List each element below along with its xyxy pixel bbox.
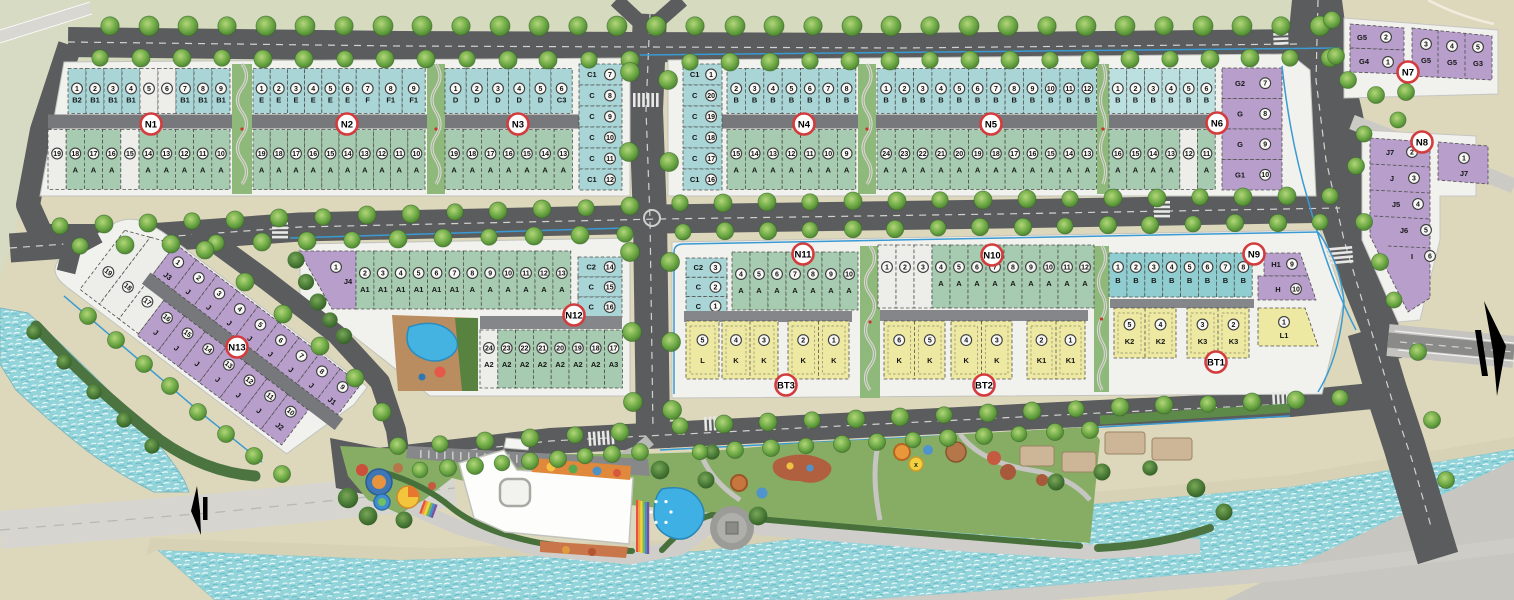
svg-text:A: A <box>91 166 97 175</box>
svg-text:G3: G3 <box>1473 59 1483 68</box>
svg-text:5: 5 <box>1188 264 1192 271</box>
svg-text:16: 16 <box>505 151 513 158</box>
svg-text:6: 6 <box>1206 264 1210 271</box>
svg-text:C: C <box>696 283 702 292</box>
svg-text:A: A <box>559 285 565 294</box>
svg-text:2: 2 <box>1410 149 1414 156</box>
svg-text:6: 6 <box>897 338 901 345</box>
svg-text:A: A <box>738 286 744 295</box>
svg-text:17: 17 <box>487 151 495 158</box>
svg-text:A: A <box>844 166 850 175</box>
svg-text:A: A <box>1085 166 1091 175</box>
svg-text:15: 15 <box>606 284 614 291</box>
svg-text:5: 5 <box>1424 227 1428 234</box>
svg-text:14: 14 <box>1065 151 1073 158</box>
svg-text:A: A <box>846 286 852 295</box>
svg-text:x: x <box>914 462 918 469</box>
svg-text:N7: N7 <box>1402 67 1414 78</box>
svg-text:A: A <box>345 166 351 175</box>
svg-text:10: 10 <box>217 151 225 158</box>
svg-text:A: A <box>73 166 79 175</box>
svg-text:15: 15 <box>1132 151 1140 158</box>
svg-text:16: 16 <box>606 304 614 311</box>
svg-text:17: 17 <box>610 345 618 352</box>
svg-text:G2: G2 <box>1235 79 1245 88</box>
svg-text:9: 9 <box>845 151 849 158</box>
svg-text:B: B <box>920 96 926 105</box>
svg-text:5: 5 <box>328 86 332 93</box>
svg-text:B1: B1 <box>180 96 190 105</box>
svg-text:A2: A2 <box>555 360 565 369</box>
svg-text:B: B <box>770 96 776 105</box>
svg-text:F1: F1 <box>409 96 418 105</box>
svg-text:J5: J5 <box>1392 200 1400 209</box>
svg-text:B: B <box>1223 276 1229 285</box>
svg-text:11: 11 <box>395 151 403 158</box>
svg-text:24: 24 <box>882 151 890 158</box>
svg-text:A: A <box>109 166 115 175</box>
svg-text:8: 8 <box>811 271 815 278</box>
svg-text:18: 18 <box>707 135 715 142</box>
svg-text:15: 15 <box>1047 151 1055 158</box>
svg-text:A: A <box>470 285 476 294</box>
svg-text:4: 4 <box>1450 43 1454 50</box>
svg-text:B: B <box>733 96 739 105</box>
svg-text:N8: N8 <box>1416 137 1428 148</box>
svg-text:A: A <box>164 166 170 175</box>
svg-text:17: 17 <box>1010 151 1018 158</box>
svg-text:A: A <box>756 286 762 295</box>
svg-text:13: 13 <box>769 151 777 158</box>
svg-text:3: 3 <box>1201 322 1205 329</box>
svg-text:A: A <box>938 166 944 175</box>
svg-text:2: 2 <box>734 86 738 93</box>
svg-text:16: 16 <box>1029 151 1037 158</box>
svg-text:2: 2 <box>1384 34 1388 41</box>
svg-text:4: 4 <box>939 86 943 93</box>
svg-text:A: A <box>828 286 834 295</box>
svg-text:A2: A2 <box>484 360 494 369</box>
svg-text:K: K <box>800 356 806 365</box>
svg-text:A: A <box>810 286 816 295</box>
svg-text:3: 3 <box>294 86 298 93</box>
svg-text:14: 14 <box>1149 151 1157 158</box>
svg-text:2: 2 <box>902 86 906 93</box>
svg-text:A: A <box>1046 279 1052 288</box>
svg-text:13: 13 <box>559 151 567 158</box>
svg-text:D: D <box>474 96 480 105</box>
svg-text:J: J <box>1390 174 1394 183</box>
svg-text:A2: A2 <box>538 360 548 369</box>
svg-text:B: B <box>1187 276 1193 285</box>
svg-text:A: A <box>883 166 889 175</box>
svg-text:14: 14 <box>751 151 759 158</box>
svg-text:C: C <box>692 154 698 163</box>
svg-text:A: A <box>451 166 457 175</box>
svg-text:A: A <box>524 166 530 175</box>
svg-text:C1: C1 <box>587 175 597 184</box>
svg-text:12: 12 <box>1185 151 1193 158</box>
svg-text:13: 13 <box>1167 151 1175 158</box>
svg-text:A: A <box>789 166 795 175</box>
svg-text:B: B <box>1085 96 1091 105</box>
svg-text:7: 7 <box>994 86 998 93</box>
svg-text:B: B <box>1048 96 1054 105</box>
svg-text:18: 18 <box>71 151 79 158</box>
svg-text:A1: A1 <box>360 285 370 294</box>
svg-text:A: A <box>1064 279 1070 288</box>
svg-text:2: 2 <box>1134 86 1138 93</box>
svg-text:18: 18 <box>275 151 283 158</box>
svg-text:3: 3 <box>921 264 925 271</box>
svg-text:A: A <box>825 166 831 175</box>
svg-text:1: 1 <box>1069 338 1073 345</box>
svg-text:B: B <box>1115 96 1121 105</box>
svg-text:K: K <box>896 356 902 365</box>
svg-text:E: E <box>276 96 281 105</box>
svg-text:C: C <box>588 303 594 312</box>
svg-text:A1: A1 <box>378 285 388 294</box>
svg-text:A: A <box>1204 166 1210 175</box>
svg-text:H1: H1 <box>1271 260 1281 269</box>
svg-text:A: A <box>1028 279 1034 288</box>
svg-text:12: 12 <box>788 151 796 158</box>
svg-text:2: 2 <box>1232 322 1236 329</box>
svg-text:10: 10 <box>1045 264 1053 271</box>
svg-text:A: A <box>902 166 908 175</box>
svg-text:19: 19 <box>258 151 266 158</box>
svg-text:13: 13 <box>1084 151 1092 158</box>
svg-text:22: 22 <box>521 345 529 352</box>
svg-text:19: 19 <box>974 151 982 158</box>
svg-text:A: A <box>276 166 282 175</box>
svg-text:1: 1 <box>1386 59 1390 66</box>
svg-text:14: 14 <box>541 151 549 158</box>
svg-text:13: 13 <box>558 270 566 277</box>
svg-text:K1: K1 <box>1037 356 1047 365</box>
svg-text:C1: C1 <box>587 70 597 79</box>
svg-text:A: A <box>182 166 188 175</box>
svg-text:15: 15 <box>327 151 335 158</box>
svg-text:C2: C2 <box>586 263 596 272</box>
svg-text:9: 9 <box>1031 86 1035 93</box>
svg-text:J7: J7 <box>1386 148 1394 157</box>
svg-text:A: A <box>488 166 494 175</box>
svg-text:14: 14 <box>144 151 152 158</box>
svg-text:B: B <box>993 96 999 105</box>
svg-text:B: B <box>1030 96 1036 105</box>
svg-text:10: 10 <box>845 271 853 278</box>
svg-text:2: 2 <box>714 284 718 291</box>
svg-text:A1: A1 <box>432 285 442 294</box>
svg-text:7: 7 <box>452 270 456 277</box>
svg-text:6: 6 <box>1428 253 1432 260</box>
svg-text:F: F <box>365 96 370 105</box>
svg-text:4: 4 <box>964 338 968 345</box>
svg-text:14: 14 <box>344 151 352 158</box>
svg-text:B: B <box>883 96 889 105</box>
svg-text:20: 20 <box>955 151 963 158</box>
svg-text:A: A <box>310 166 316 175</box>
svg-text:19: 19 <box>707 114 715 121</box>
svg-text:1: 1 <box>884 86 888 93</box>
svg-text:G1: G1 <box>1235 170 1245 179</box>
svg-text:1: 1 <box>885 264 889 271</box>
svg-text:B: B <box>844 96 850 105</box>
svg-text:A2: A2 <box>520 360 530 369</box>
svg-text:1: 1 <box>714 304 718 311</box>
svg-text:11: 11 <box>1203 151 1211 158</box>
svg-text:20: 20 <box>707 93 715 100</box>
svg-text:4: 4 <box>939 264 943 271</box>
svg-text:5: 5 <box>957 86 961 93</box>
svg-text:A: A <box>975 166 981 175</box>
svg-text:4: 4 <box>1170 264 1174 271</box>
svg-text:D: D <box>538 96 544 105</box>
svg-text:2: 2 <box>475 86 479 93</box>
svg-text:17: 17 <box>292 151 300 158</box>
svg-text:B: B <box>1115 276 1121 285</box>
svg-text:19: 19 <box>450 151 458 158</box>
svg-text:4: 4 <box>399 270 403 277</box>
svg-text:A: A <box>293 166 299 175</box>
svg-text:A: A <box>938 279 944 288</box>
svg-text:A: A <box>396 166 402 175</box>
svg-text:22: 22 <box>919 151 927 158</box>
svg-text:3: 3 <box>995 338 999 345</box>
svg-text:5: 5 <box>147 86 151 93</box>
svg-text:B: B <box>1011 96 1017 105</box>
svg-text:C: C <box>588 283 594 292</box>
svg-text:A: A <box>328 166 334 175</box>
svg-text:12: 12 <box>1084 86 1092 93</box>
svg-text:B: B <box>938 96 944 105</box>
svg-text:A: A <box>1010 279 1016 288</box>
svg-text:2: 2 <box>801 338 805 345</box>
svg-text:B: B <box>1150 96 1156 105</box>
svg-text:6: 6 <box>560 86 564 93</box>
svg-text:9: 9 <box>829 271 833 278</box>
svg-text:J4: J4 <box>344 277 353 286</box>
svg-text:G: G <box>1237 109 1243 118</box>
svg-text:B: B <box>1168 96 1174 105</box>
svg-text:A: A <box>487 285 493 294</box>
svg-text:1: 1 <box>1462 155 1466 162</box>
svg-text:7: 7 <box>826 86 830 93</box>
svg-text:8: 8 <box>1012 86 1016 93</box>
svg-text:13: 13 <box>361 151 369 158</box>
svg-text:10: 10 <box>1047 86 1055 93</box>
svg-text:9: 9 <box>219 86 223 93</box>
svg-text:K: K <box>994 356 1000 365</box>
svg-text:11: 11 <box>522 270 530 277</box>
svg-text:B1: B1 <box>126 96 136 105</box>
svg-text:21: 21 <box>937 151 945 158</box>
svg-text:K: K <box>927 356 933 365</box>
svg-text:D: D <box>495 96 501 105</box>
svg-text:10: 10 <box>504 270 512 277</box>
svg-text:B: B <box>957 96 963 105</box>
svg-text:15: 15 <box>732 151 740 158</box>
svg-text:7: 7 <box>1223 264 1227 271</box>
svg-text:A: A <box>1030 166 1036 175</box>
svg-text:N9: N9 <box>1248 249 1260 260</box>
svg-text:A: A <box>774 286 780 295</box>
svg-text:A: A <box>1168 166 1174 175</box>
svg-text:C1: C1 <box>690 175 700 184</box>
svg-text:7: 7 <box>608 72 612 79</box>
svg-text:K2: K2 <box>1156 337 1166 346</box>
svg-text:A: A <box>541 285 547 294</box>
svg-text:A: A <box>259 166 265 175</box>
svg-text:A1: A1 <box>414 285 424 294</box>
svg-text:G5: G5 <box>1357 33 1367 42</box>
svg-text:12: 12 <box>606 177 614 184</box>
svg-text:C: C <box>692 112 698 121</box>
svg-text:6: 6 <box>346 86 350 93</box>
svg-text:A: A <box>200 166 206 175</box>
svg-text:3: 3 <box>496 86 500 93</box>
svg-text:6: 6 <box>808 86 812 93</box>
svg-text:17: 17 <box>90 151 98 158</box>
svg-text:L: L <box>700 356 705 365</box>
svg-text:5: 5 <box>757 271 761 278</box>
svg-text:E: E <box>293 96 298 105</box>
svg-text:B: B <box>975 96 981 105</box>
svg-text:11: 11 <box>806 151 814 158</box>
svg-text:10: 10 <box>413 151 421 158</box>
svg-text:17: 17 <box>707 156 715 163</box>
svg-text:A1: A1 <box>450 285 460 294</box>
svg-text:A: A <box>770 166 776 175</box>
svg-text:4: 4 <box>1416 201 1420 208</box>
svg-text:18: 18 <box>992 151 1000 158</box>
svg-text:C: C <box>589 112 595 121</box>
svg-text:G: G <box>1237 140 1243 149</box>
svg-text:A3: A3 <box>609 360 619 369</box>
svg-text:19: 19 <box>53 151 61 158</box>
svg-text:3: 3 <box>714 265 718 272</box>
svg-text:18: 18 <box>592 345 600 352</box>
svg-text:11: 11 <box>1063 264 1071 271</box>
svg-text:B: B <box>1151 276 1157 285</box>
svg-text:23: 23 <box>503 345 511 352</box>
svg-text:24: 24 <box>485 345 493 352</box>
svg-text:C1: C1 <box>690 70 700 79</box>
svg-text:6: 6 <box>165 86 169 93</box>
svg-text:N2: N2 <box>341 119 353 130</box>
svg-text:6: 6 <box>775 271 779 278</box>
svg-text:K2: K2 <box>1125 337 1135 346</box>
svg-text:A: A <box>362 166 368 175</box>
svg-text:3: 3 <box>1151 86 1155 93</box>
svg-text:A: A <box>470 166 476 175</box>
svg-text:16: 16 <box>108 151 116 158</box>
svg-text:B: B <box>1133 276 1139 285</box>
svg-text:13: 13 <box>162 151 170 158</box>
svg-text:16: 16 <box>1114 151 1122 158</box>
svg-text:I: I <box>1411 252 1413 261</box>
svg-text:8: 8 <box>1263 111 1267 118</box>
svg-text:B: B <box>807 96 813 105</box>
svg-text:K3: K3 <box>1229 337 1239 346</box>
svg-text:5: 5 <box>928 338 932 345</box>
svg-text:9: 9 <box>1263 142 1267 149</box>
svg-text:2: 2 <box>903 264 907 271</box>
svg-text:N5: N5 <box>985 119 998 130</box>
svg-text:A2: A2 <box>573 360 583 369</box>
svg-text:B: B <box>1241 276 1247 285</box>
svg-text:A2: A2 <box>591 360 601 369</box>
svg-text:B: B <box>789 96 795 105</box>
svg-text:1: 1 <box>454 86 458 93</box>
svg-text:2: 2 <box>1134 264 1138 271</box>
svg-text:C3: C3 <box>557 96 567 105</box>
svg-text:12: 12 <box>1081 264 1089 271</box>
svg-text:1: 1 <box>709 72 713 79</box>
svg-text:A: A <box>956 279 962 288</box>
svg-text:B: B <box>1066 96 1072 105</box>
svg-text:A: A <box>733 166 739 175</box>
svg-text:5: 5 <box>1476 44 1480 51</box>
svg-text:5: 5 <box>1128 322 1132 329</box>
svg-text:9: 9 <box>1029 264 1033 271</box>
svg-text:6: 6 <box>976 86 980 93</box>
svg-text:A: A <box>1048 166 1054 175</box>
svg-text:23: 23 <box>901 151 909 158</box>
svg-text:5: 5 <box>957 264 961 271</box>
svg-text:N3: N3 <box>512 119 524 130</box>
svg-text:7: 7 <box>183 86 187 93</box>
svg-text:C: C <box>589 133 595 142</box>
svg-text:D: D <box>453 96 459 105</box>
svg-text:A: A <box>1115 166 1121 175</box>
svg-text:15: 15 <box>523 151 531 158</box>
svg-text:3: 3 <box>111 86 115 93</box>
svg-text:B: B <box>1205 276 1211 285</box>
svg-text:BT3: BT3 <box>777 380 795 391</box>
svg-text:2: 2 <box>1040 338 1044 345</box>
svg-text:8: 8 <box>389 86 393 93</box>
svg-text:9: 9 <box>412 86 416 93</box>
svg-text:A: A <box>1011 166 1017 175</box>
svg-text:3: 3 <box>753 86 757 93</box>
svg-text:5: 5 <box>417 270 421 277</box>
svg-text:5: 5 <box>1187 86 1191 93</box>
svg-text:A: A <box>542 166 548 175</box>
svg-text:A: A <box>920 166 926 175</box>
svg-text:A1: A1 <box>396 285 406 294</box>
svg-text:10: 10 <box>1292 286 1300 293</box>
svg-text:11: 11 <box>1065 86 1073 93</box>
svg-text:J6: J6 <box>1400 226 1408 235</box>
svg-text:12: 12 <box>378 151 386 158</box>
svg-text:L1: L1 <box>1280 331 1289 340</box>
svg-text:E: E <box>345 96 350 105</box>
svg-text:B2: B2 <box>72 96 82 105</box>
svg-text:5: 5 <box>538 86 542 93</box>
svg-text:B1: B1 <box>198 96 208 105</box>
svg-text:A: A <box>1082 279 1088 288</box>
svg-text:H: H <box>1275 285 1280 294</box>
svg-text:B1: B1 <box>216 96 226 105</box>
svg-text:1: 1 <box>832 338 836 345</box>
svg-text:G5: G5 <box>1447 58 1457 67</box>
svg-text:N11: N11 <box>795 249 813 260</box>
svg-text:A: A <box>1133 166 1139 175</box>
svg-text:3: 3 <box>762 338 766 345</box>
svg-text:B: B <box>825 96 831 105</box>
